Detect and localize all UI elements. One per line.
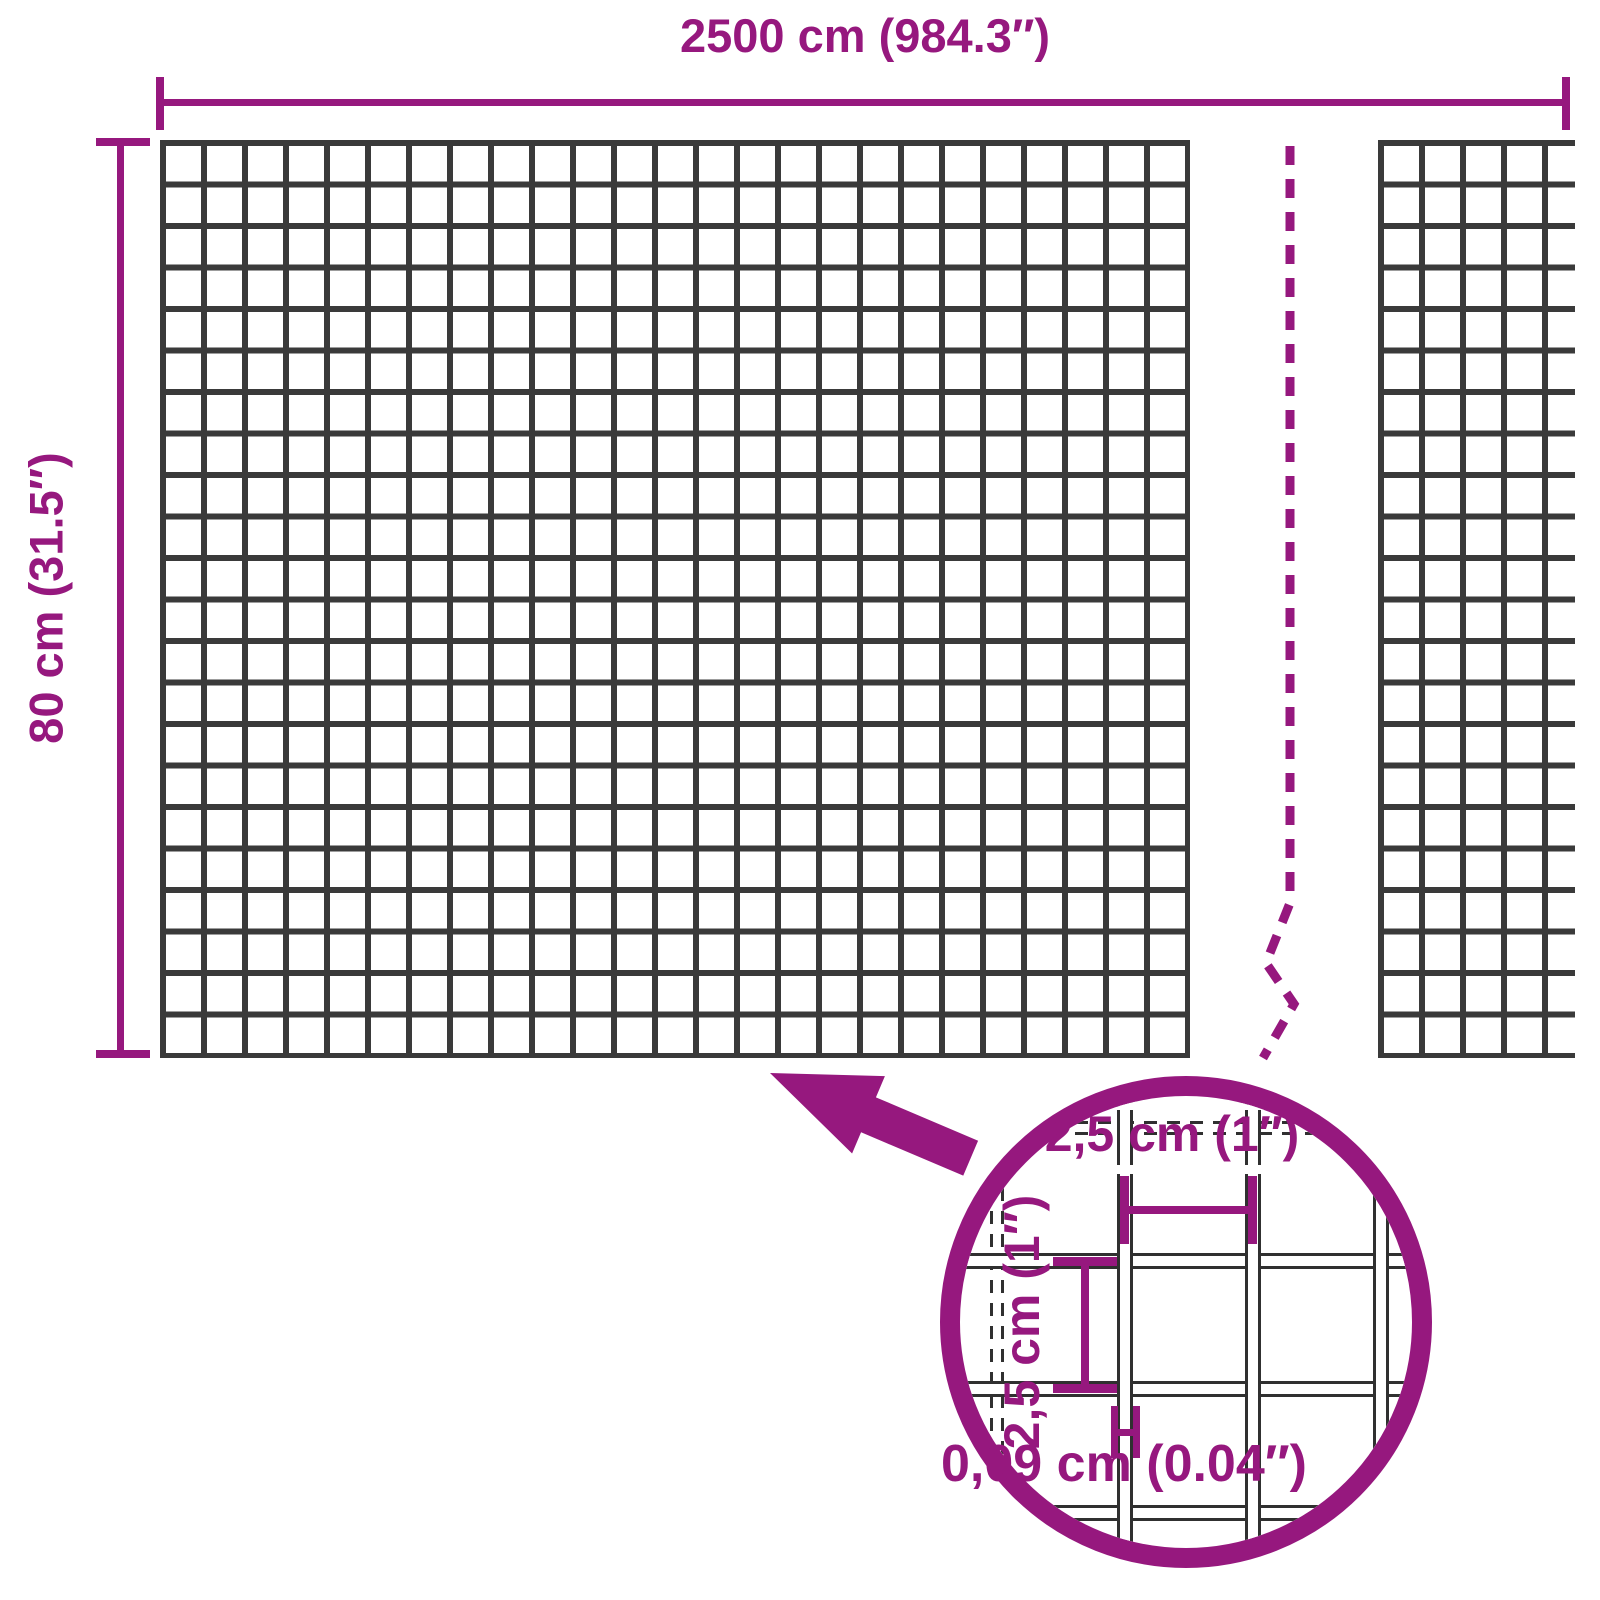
wire-dash-gap	[1114, 1165, 1136, 1174]
cell-width-dim-cap	[1120, 1176, 1129, 1244]
height-dimension-cap-bottom	[96, 1050, 150, 1058]
cell-height-dim-cap	[1053, 1384, 1117, 1393]
break-line-icon	[1263, 146, 1294, 1058]
cell-height-dim-cap	[1053, 1257, 1117, 1266]
mesh-wire-horizontal	[960, 1505, 1412, 1521]
zoom-arrow-icon	[754, 1034, 987, 1197]
product-dimension-diagram: 2500 cm (984.3″) 80 cm (31.5″)	[0, 0, 1600, 1600]
cell-height-dim-line	[1081, 1261, 1089, 1389]
wire-dash-gap	[1242, 1165, 1264, 1174]
wire-thickness-label: 0,09 cm (0.04″)	[941, 1434, 1307, 1494]
mesh-grid-main	[160, 140, 1190, 1058]
cell-height-label: 2,5 cm (1″)	[993, 1195, 1051, 1450]
mesh-wire-vertical	[1373, 1096, 1389, 1548]
width-dimension-cap-right	[1562, 77, 1570, 130]
mesh-grid-continuation	[1378, 140, 1575, 1058]
width-dimension-line	[160, 99, 1567, 106]
cell-width-dim-cap	[1248, 1176, 1257, 1244]
height-dimension-line	[117, 140, 124, 1056]
cell-width-label: 2,5 cm (1″)	[1045, 1105, 1300, 1163]
height-dimension-cap-top	[96, 138, 150, 146]
width-dimension-cap-left	[156, 77, 164, 130]
width-dimension-label: 2500 cm (984.3″)	[160, 8, 1570, 63]
cell-width-dim-line	[1125, 1206, 1253, 1214]
height-dimension-label: 80 cm (31.5″)	[19, 452, 74, 744]
